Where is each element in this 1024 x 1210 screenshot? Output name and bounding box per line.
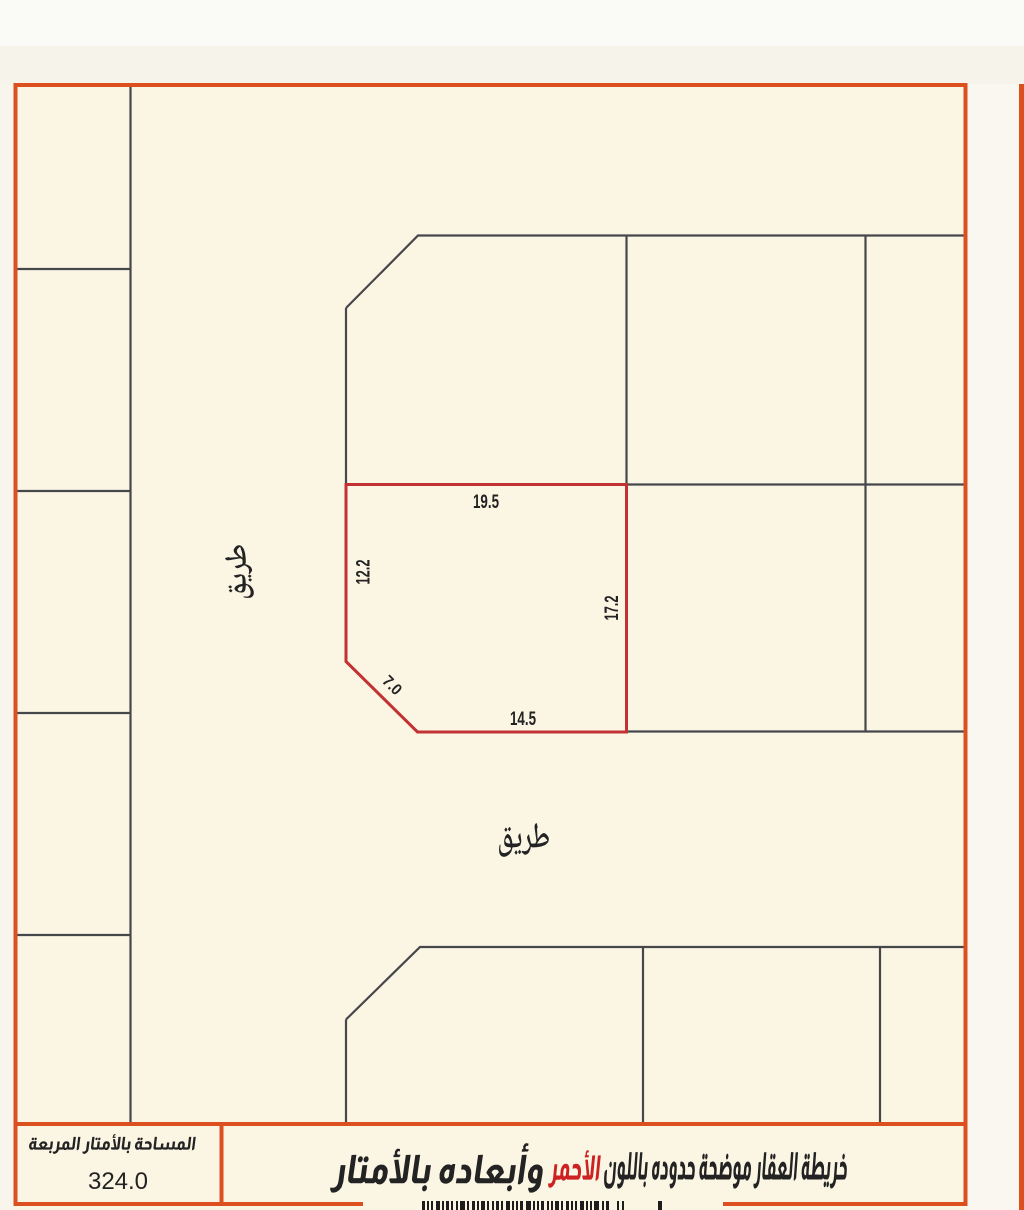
svg-text:19.5: 19.5 (473, 492, 499, 513)
svg-text:12.2: 12.2 (354, 560, 375, 585)
svg-text:324.0: 324.0 (88, 1168, 148, 1195)
svg-text:17.2: 17.2 (602, 596, 623, 621)
svg-text:14.5: 14.5 (510, 709, 536, 730)
